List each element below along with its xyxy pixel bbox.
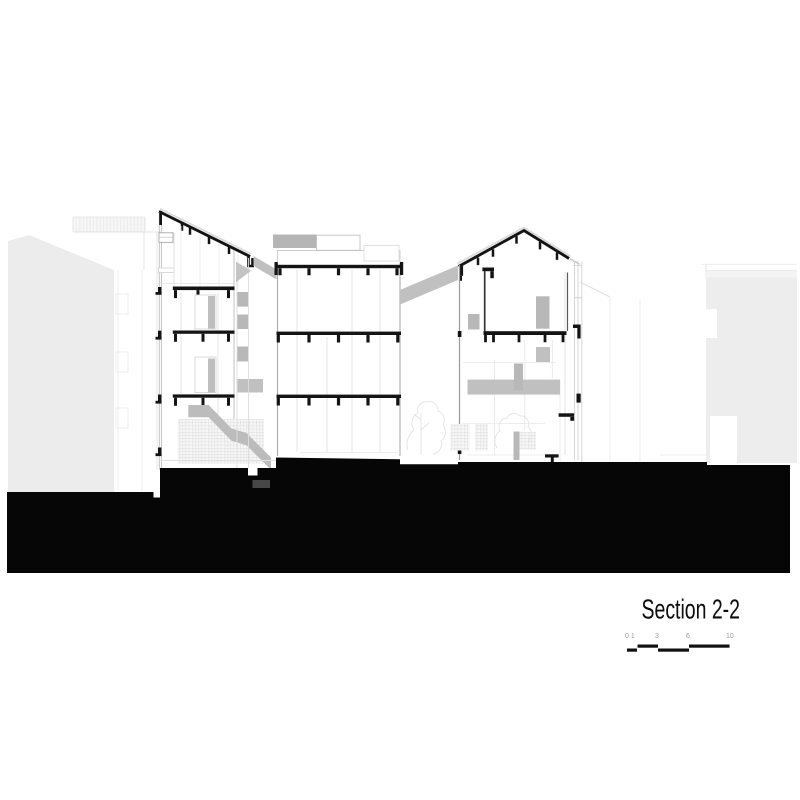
svg-text:10: 10 xyxy=(726,633,734,640)
svg-text:6: 6 xyxy=(686,633,690,640)
svg-text:Section 2-2: Section 2-2 xyxy=(642,594,741,625)
svg-text:3: 3 xyxy=(655,633,659,640)
svg-text:0 1: 0 1 xyxy=(625,633,635,640)
